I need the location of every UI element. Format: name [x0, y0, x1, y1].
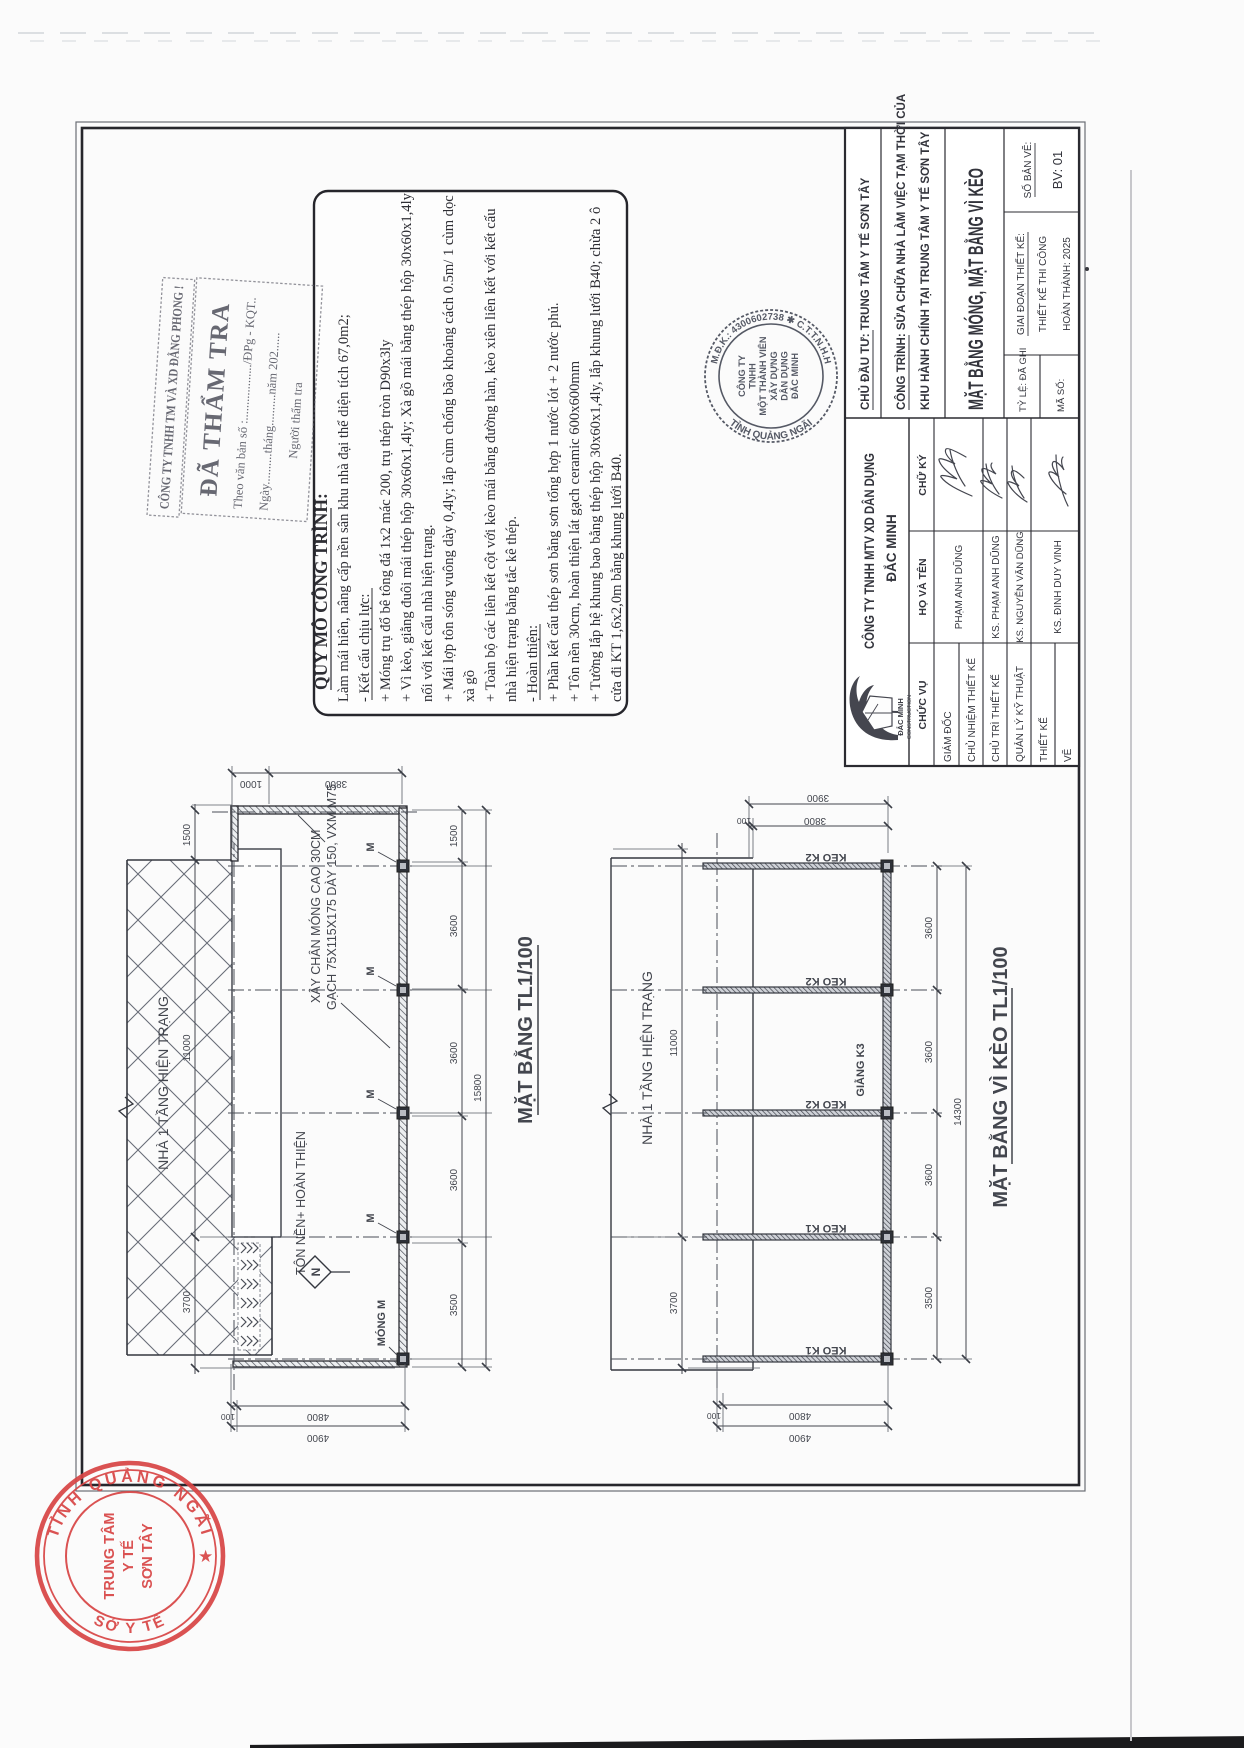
svg-text:HOÀN THÀNH: 2025: HOÀN THÀNH: 2025: [1060, 237, 1073, 331]
svg-text:4900: 4900: [306, 1432, 329, 1443]
svg-text:KÈO K1: KÈO K1: [806, 1344, 847, 1357]
svg-text:100: 100: [707, 1411, 721, 1421]
svg-text:THIẾT KẾ: THIẾT KẾ: [1037, 717, 1050, 762]
svg-text:THIẾT KẾ THI CÔNG: THIẾT KẾ THI CÔNG: [1036, 236, 1049, 333]
svg-text:Người thẩm tra: Người thẩm tra: [286, 381, 305, 459]
svg-text:CHỦ ĐẦU TƯ: TRUNG TÂM Y TẾ SƠN: CHỦ ĐẦU TƯ: TRUNG TÂM Y TẾ SƠN TÂY: [859, 177, 872, 410]
svg-text:ĐẮC MINH: ĐẮC MINH: [896, 698, 905, 736]
svg-text:GIÁM ĐỐC: GIÁM ĐỐC: [940, 711, 954, 762]
svg-text:4800: 4800: [306, 1411, 329, 1422]
svg-text:+ Tường lắp hệ khung bao bằng: + Tường lắp hệ khung bao bằng thép hộp 3…: [588, 207, 604, 702]
svg-text:TỶ LỆ: ĐÃ GHI: TỶ LỆ: ĐÃ GHI: [1017, 348, 1029, 412]
svg-text:3600: 3600: [924, 1163, 935, 1186]
svg-text:SỞ Y TẾ: SỞ Y TẾ: [91, 1612, 169, 1637]
svg-text:KÈO K2: KÈO K2: [806, 851, 847, 864]
svg-text:3600: 3600: [449, 914, 460, 937]
svg-text:3700: 3700: [182, 1290, 193, 1313]
svg-text:3900: 3900: [806, 792, 829, 803]
svg-text:CONSTRUCTION: CONSTRUCTION: [907, 695, 913, 739]
svg-text:nhà hiện trạng bằng tắc kê thé: nhà hiện trạng bằng tắc kê thép.: [504, 516, 520, 702]
svg-text:Y TẾ: Y TẾ: [120, 1540, 137, 1572]
svg-text:11000: 11000: [182, 1034, 193, 1062]
svg-text:Ngày..........tháng..........n: Ngày..........tháng..........năm 202....…: [257, 332, 283, 511]
svg-text:N: N: [309, 1268, 323, 1277]
svg-text:KÈO K2: KÈO K2: [806, 1098, 847, 1111]
svg-text:Theo văn bản số :.............: Theo văn bản số :................../ĐPg …: [231, 297, 259, 510]
svg-text:TÔN NỀN+ HOÀN THIỆN: TÔN NỀN+ HOÀN THIỆN: [293, 1131, 308, 1275]
svg-text:PHẠM ANH DŨNG: PHẠM ANH DŨNG: [952, 545, 965, 630]
svg-text:GẠCH 75X115X175 DÀY 150, VXM M: GẠCH 75X115X175 DÀY 150, VXM M75: [324, 784, 339, 1010]
svg-text:1500: 1500: [449, 824, 460, 847]
svg-text:1500: 1500: [182, 823, 193, 846]
svg-text:★: ★: [198, 1547, 213, 1566]
svg-text:+ Móng trụ đổ bê tông đá 1x2 m: + Móng trụ đổ bê tông đá 1x2 mác 200, tr…: [378, 339, 394, 702]
svg-text:100: 100: [737, 816, 751, 826]
svg-text:TNHH: TNHH: [748, 363, 758, 389]
svg-text:SƠN TÂY: SƠN TÂY: [138, 1523, 156, 1589]
svg-text:MÃ SỐ:: MÃ SỐ:: [1055, 379, 1067, 412]
svg-text:15800: 15800: [473, 1074, 484, 1102]
svg-text:+ Vì kèo, giằng đuôi mái thép: + Vì kèo, giằng đuôi mái thép hộp 30x60x…: [399, 192, 415, 702]
svg-text:GIAI ĐOẠN THIẾT KẾ:: GIAI ĐOẠN THIẾT KẾ:: [1014, 233, 1027, 335]
svg-text:DÂN DỤNG: DÂN DỤNG: [778, 351, 789, 401]
svg-text:CÔNG TY TNHH TM VÀ XD ĐẰNG PHO: CÔNG TY TNHH TM VÀ XD ĐẰNG PHONG !: [156, 285, 186, 510]
svg-text:3700: 3700: [669, 1291, 680, 1314]
svg-text:TRUNG TÂM: TRUNG TÂM: [100, 1513, 118, 1600]
svg-text:- Kết cấu chịu lực:: - Kết cấu chịu lực:: [357, 594, 373, 702]
svg-text:+ Phần kết cấu thép sơn bằng s: + Phần kết cấu thép sơn bằng sơn tổng hợ…: [546, 302, 562, 702]
svg-text:3800: 3800: [324, 778, 347, 789]
svg-text:CHỮ KÝ: CHỮ KÝ: [916, 454, 929, 495]
svg-text:4800: 4800: [788, 1410, 811, 1421]
svg-text:MẶT BẰNG VÌ KÈO TL1/100: MẶT BẰNG VÌ KÈO TL1/100: [988, 946, 1012, 1207]
svg-text:M: M: [365, 1213, 377, 1222]
svg-text:3800: 3800: [803, 815, 826, 826]
svg-text:Làm mái hiên, nâng cấp nền sân: Làm mái hiên, nâng cấp nền sân khu nhà đ…: [336, 314, 352, 702]
svg-text:3500: 3500: [924, 1286, 935, 1309]
svg-text:ĐẮC MINH: ĐẮC MINH: [790, 353, 800, 399]
svg-text:CÔNG TY TNHH MTV XD DÂN DỤNG: CÔNG TY TNHH MTV XD DÂN DỤNG: [862, 453, 877, 649]
svg-text:M: M: [365, 1089, 377, 1098]
svg-text:KS. NGUYỄN VĂN DŨNG: KS. NGUYỄN VĂN DŨNG: [1014, 531, 1026, 642]
svg-text:QUY MÔ CÔNG TRÌNH:: QUY MÔ CÔNG TRÌNH:: [311, 493, 331, 690]
svg-text:MỘT THÀNH VIÊN: MỘT THÀNH VIÊN: [757, 336, 768, 415]
svg-text:MẶT BẰNG TL1/100: MẶT BẰNG TL1/100: [513, 936, 537, 1124]
svg-text:KS. PHẠM ANH DŨNG: KS. PHẠM ANH DŨNG: [989, 535, 1002, 639]
svg-text:CHỨC VỤ: CHỨC VỤ: [916, 681, 929, 730]
svg-text:14300: 14300: [953, 1098, 964, 1126]
svg-text:M: M: [365, 842, 377, 851]
svg-text:KS. ĐINH DUY VINH: KS. ĐINH DUY VINH: [1053, 540, 1064, 634]
svg-text:TỈNH QUẢNG NGÃI: TỈNH QUẢNG NGÃI: [727, 417, 815, 442]
svg-text:ĐÃ THẨM TRA: ĐÃ THẨM TRA: [193, 301, 235, 497]
svg-text:KÈO K1: KÈO K1: [806, 1222, 847, 1235]
svg-text:QUẢN LÝ KỸ THUẬT: QUẢN LÝ KỸ THUẬT: [1013, 666, 1026, 762]
svg-text:11000: 11000: [669, 1029, 680, 1057]
svg-text:4900: 4900: [788, 1432, 811, 1443]
svg-text:ĐẮC MINH: ĐẮC MINH: [884, 514, 899, 582]
svg-text:+ Mái lợp tôn sóng vuông dày 0: + Mái lợp tôn sóng vuông dày 0,4ly; lắp …: [441, 195, 457, 702]
svg-text:1000: 1000: [239, 778, 262, 789]
svg-text:3500: 3500: [449, 1293, 460, 1316]
svg-text:MẶT BẰNG MÓNG, MẶT BẰNG VÌ KÈO: MẶT BẰNG MÓNG, MẶT BẰNG VÌ KÈO: [964, 168, 988, 410]
svg-text:3600: 3600: [924, 1040, 935, 1063]
svg-text:KHU HÀNH CHÍNH TẠI TRUNG TÂM Y: KHU HÀNH CHÍNH TẠI TRUNG TÂM Y TẾ SƠN TÂ…: [919, 131, 932, 410]
svg-text:GIẰNG K3: GIẰNG K3: [854, 1043, 867, 1096]
svg-text:BV: 01: BV: 01: [1050, 151, 1065, 190]
svg-text:VẼ: VẼ: [1061, 748, 1074, 762]
svg-text:+ Tôn nền 30cm, hoàn thiện lát: + Tôn nền 30cm, hoàn thiện lát gạch cera…: [567, 360, 583, 702]
svg-text:100: 100: [221, 1412, 235, 1422]
svg-text:3600: 3600: [449, 1041, 460, 1064]
svg-text:cửa đi KT 1,6x2,0m bằng khung: cửa đi KT 1,6x2,0m bằng khung lưới B40.: [609, 453, 625, 702]
svg-text:CÔNG TRÌNH: SỬA CHỮA NHÀ LÀM: CÔNG TRÌNH: SỬA CHỮA NHÀ LÀM VIỆC TẠM TH…: [895, 94, 908, 410]
svg-text:XÂY CHÂN MÓNG CAO 30CM: XÂY CHÂN MÓNG CAO 30CM: [308, 830, 323, 1003]
svg-text:xà gồ: xà gồ: [462, 670, 478, 702]
svg-text:MÓNG M: MÓNG M: [375, 1300, 388, 1346]
svg-text:3600: 3600: [449, 1168, 460, 1191]
svg-text:SỐ BẢN VẼ:: SỐ BẢN VẼ:: [1020, 142, 1034, 199]
svg-text:CÔNG TY: CÔNG TY: [736, 355, 747, 397]
svg-text:nối với kết cấu nhà hiện trạng: nối với kết cấu nhà hiện trạng.: [420, 524, 436, 702]
svg-text:XÂY DỰNG: XÂY DỰNG: [768, 351, 779, 400]
svg-text:NHÀ 1 TẦNG HIỆN TRẠNG: NHÀ 1 TẦNG HIỆN TRẠNG: [155, 996, 171, 1170]
svg-text:KÈO K2: KÈO K2: [806, 975, 847, 988]
svg-text:HỌ VÀ TÊN: HỌ VÀ TÊN: [916, 558, 929, 615]
svg-text:CHỦ NHIỆM THIẾT KẾ: CHỦ NHIỆM THIẾT KẾ: [965, 658, 978, 762]
svg-text:M: M: [365, 966, 377, 975]
svg-text:CHỦ TRÌ THIẾT KẾ: CHỦ TRÌ THIẾT KẾ: [989, 674, 1002, 762]
svg-text:TỈNH QUẢNG NGÃI: TỈNH QUẢNG NGÃI: [45, 1467, 216, 1540]
svg-text:NHÀ 1 TẦNG HIỆN TRẠNG: NHÀ 1 TẦNG HIỆN TRẠNG: [639, 971, 655, 1145]
svg-text:3600: 3600: [924, 916, 935, 939]
svg-text:+ Toàn bộ các liên kết cột với: + Toàn bộ các liên kết cột với kèo mái b…: [483, 208, 499, 702]
svg-text:- Hoàn thiện:: - Hoàn thiện:: [525, 625, 541, 702]
